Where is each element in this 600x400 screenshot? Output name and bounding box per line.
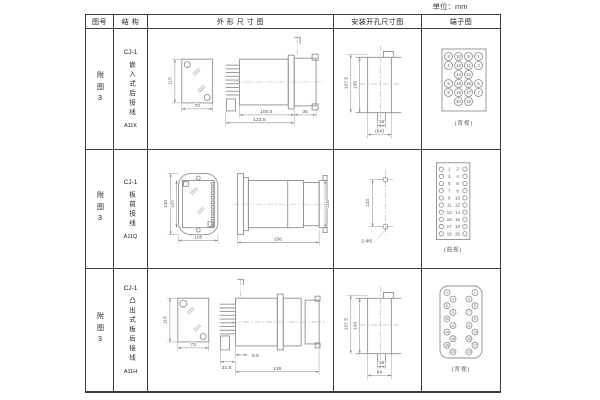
model-text: CJ-1 [124,285,138,292]
figure-no-text: 附图3 [95,312,105,348]
row2-figure-no: 附图3 [86,150,114,269]
row1-mounting-cell: 107.5 105 16 (64) [334,29,422,150]
svg-text:20: 20 [451,350,455,354]
terminal-pins: 2109141211314136161558181772019 [445,53,483,106]
svg-text:11: 11 [467,324,471,328]
svg-text:1: 1 [474,291,476,295]
svg-text:14: 14 [456,72,461,77]
svg-text:11: 11 [466,63,471,68]
dimension-table: 图号 结 构 外 形 尺 寸 图 安装开孔尺寸图 端子图 附图3 CJ-1 嵌入… [85,14,501,393]
dim-hole-spacing: 133 [365,199,371,207]
svg-text:18: 18 [445,344,449,348]
dim-side-d2: 122.5 [253,117,266,123]
mounting-drawing-a11q: 133 2-Φ5 [334,150,421,268]
mounting-drawing-a11h: 107.5 104 16 64 [334,269,421,391]
svg-text:18: 18 [455,224,460,229]
figure-no-text: 附图3 [95,191,105,227]
svg-text:18: 18 [456,90,461,95]
dim-front-width: 72 [194,103,200,109]
header-terminal: 端子图 [422,15,500,29]
dim-front-inner: 125 [170,200,176,208]
row2-structure: CJ-1 板前接线 A11Q [114,150,148,269]
dim-cutout-width: 64 [377,370,383,376]
terminal-diagram-a11h: 2143658710912111413161518172019 (背视) [422,269,500,391]
terminal-pins: 2143658710912111413161518172019 [444,290,478,355]
structure-code-text: A11Q [124,234,138,240]
dim-side-d1: 31.5 [222,365,232,371]
row1-terminal-cell: 2109141211314136161558181772019 (背视) [422,29,500,150]
dim-front-width: 72 [190,342,196,348]
svg-text:19: 19 [467,350,471,354]
outline-drawing-a11q: 140 125 105 156 115 [148,150,333,268]
row3-mounting-cell: 107.5 104 16 64 [334,269,422,392]
svg-text:15: 15 [467,337,471,341]
svg-text:9: 9 [474,317,476,321]
terminal-caption: (背视) [455,119,474,127]
dim-slot-width: 16 [379,119,385,125]
svg-text:19: 19 [447,231,452,236]
dim-cutout-outer: 107.5 [343,77,349,90]
svg-text:10: 10 [455,195,460,200]
svg-text:9: 9 [448,195,451,200]
outline-drawing-a11k: 115 72 100.5 35 [148,29,333,149]
svg-text:2: 2 [446,291,448,295]
svg-text:17: 17 [447,224,452,229]
row3-structure: CJ-1 凸出式板后接线 A11H [114,269,148,392]
row1-outline-cell: 115 72 100.5 35 [148,29,334,150]
svg-text:13: 13 [447,210,452,215]
model-text: CJ-1 [124,49,138,56]
svg-text:10: 10 [445,317,449,321]
row1-structure: CJ-1 嵌入式后接线 A11K [114,29,148,150]
svg-text:11: 11 [447,203,452,208]
svg-text:16: 16 [455,217,460,222]
structure-desc-text: 板前接线 [126,191,136,229]
svg-text:15: 15 [447,217,452,222]
svg-text:14: 14 [445,330,449,334]
svg-text:14: 14 [455,210,460,215]
unit-label: 单位：mm [400,1,500,12]
svg-text:12: 12 [456,63,461,68]
structure-code-text: A11H [124,369,137,375]
svg-text:17: 17 [473,344,477,348]
dim-front-outer: 140 [163,200,169,208]
row3-figure-no: 附图3 [86,269,114,392]
dim-front-height: 115 [167,77,173,85]
terminal-caption: (前视) [444,245,462,253]
row2-terminal-cell: 1234567891011121314151617181920 (前视) [422,150,500,269]
svg-text:4: 4 [456,174,459,179]
svg-text:5: 5 [448,181,451,186]
svg-text:7: 7 [448,188,451,193]
dim-side-d2: 9.5 [252,353,259,359]
svg-text:5: 5 [474,304,476,308]
figure-no-text: 附图3 [95,71,105,107]
mounting-drawing-a11k: 107.5 105 16 (64) [334,29,421,149]
hole-label: 2-Φ5 [361,238,372,244]
terminal-diagram-a11k: 2109141211314136161558181772019 (背视) [422,29,500,149]
spec-sheet-page: 单位：mm 图号 结 构 外 形 尺 寸 图 安装开孔尺寸图 端子图 附图3 C… [0,0,600,400]
header-structure: 结 构 [114,15,148,29]
svg-text:16: 16 [456,81,461,86]
svg-text:6: 6 [446,304,448,308]
svg-text:12: 12 [451,324,455,328]
svg-text:13: 13 [473,330,477,334]
structure-desc-text: 凸出式板后接线 [126,297,136,364]
structure-desc-text: 嵌入式后接线 [126,61,136,118]
dim-cutout-inner: 105 [353,81,359,89]
svg-text:20: 20 [455,231,460,236]
row2-mounting-cell: 133 2-Φ5 [334,150,422,269]
row3-terminal-cell: 2143658710912111413161518172019 (背视) [422,269,500,392]
terminal-diagram-a11q: 1234567891011121314151617181920 (前视) [422,150,500,268]
svg-text:4: 4 [452,297,454,301]
svg-text:1: 1 [448,167,451,172]
svg-text:2: 2 [456,167,459,172]
dim-side-height: 115 [325,200,331,208]
dim-side-width: 156 [274,236,282,242]
row1-figure-no: 附图3 [86,29,114,150]
model-text: CJ-1 [124,179,138,186]
dim-cutout-inner: 104 [353,322,359,330]
dim-slot-width: 16 [379,360,385,366]
dim-cutout-width: (64) [375,129,384,135]
svg-text:8: 8 [452,311,454,315]
dim-side-d3: 35 [302,109,308,115]
row3-outline-cell: 115 72 9.5 31. [148,269,334,392]
dim-front-width: 105 [194,235,202,241]
svg-text:13: 13 [466,72,471,77]
svg-text:17: 17 [466,90,471,95]
terminal-pins: 1234567891011121314151617181920 [439,167,467,237]
svg-text:7: 7 [468,311,470,315]
header-outline: 外 形 尺 寸 图 [148,15,334,29]
header-figure-no: 图号 [86,15,114,29]
svg-text:20: 20 [456,99,461,104]
svg-text:3: 3 [448,174,451,179]
structure-code-text: A11K [124,123,137,129]
header-mounting: 安装开孔尺寸图 [334,15,422,29]
svg-text:3: 3 [468,297,470,301]
dim-cutout-outer: 107.5 [343,318,349,331]
svg-text:12: 12 [455,203,460,208]
svg-text:15: 15 [466,81,471,86]
dim-side-d3: 126 [273,366,282,372]
dim-side-d1: 100.5 [260,109,273,115]
outline-drawing-a11h: 115 72 9.5 31. [148,269,333,391]
svg-text:6: 6 [456,181,459,186]
svg-text:19: 19 [466,99,471,104]
svg-text:16: 16 [451,337,455,341]
dim-front-height: 115 [162,316,168,324]
terminal-caption: (背视) [452,365,471,373]
svg-text:10: 10 [456,54,461,59]
svg-text:8: 8 [456,188,459,193]
row2-outline-cell: 140 125 105 156 115 [148,150,334,269]
